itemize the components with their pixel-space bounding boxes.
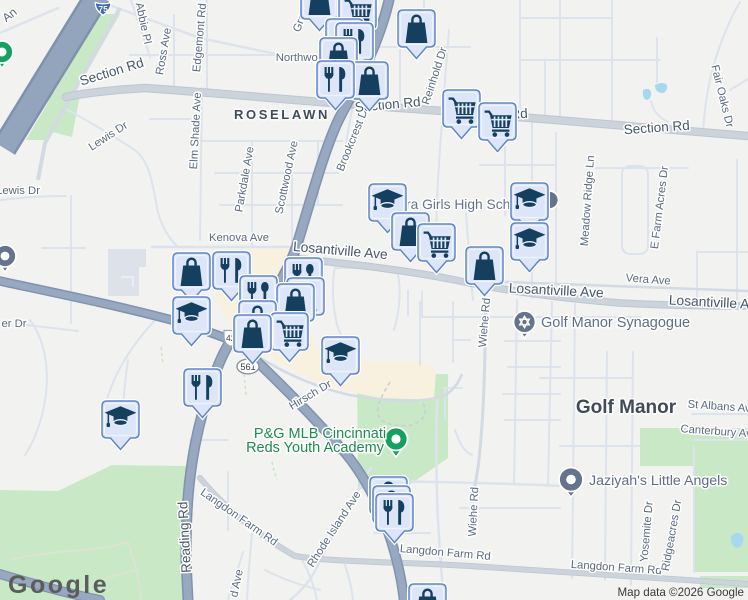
svg-text:ra Girls High Scho: ra Girls High Scho: [406, 197, 518, 212]
svg-text:Golf Manor: Golf Manor: [576, 397, 677, 418]
svg-text:Golf Manor Synagogue: Golf Manor Synagogue: [541, 315, 690, 331]
svg-text:75: 75: [98, 4, 108, 14]
svg-text:Lewis Dr: Lewis Dr: [0, 185, 40, 197]
svg-text:Kenova Ave: Kenova Ave: [209, 232, 269, 244]
svg-text:Map data ©2026 Google: Map data ©2026 Google: [617, 586, 744, 599]
svg-text:Reds Youth Academy: Reds Youth Academy: [246, 440, 385, 456]
svg-text:ROSELAWN: ROSELAWN: [234, 107, 330, 122]
svg-text:Google: Google: [8, 571, 109, 599]
svg-text:er Dr: er Dr: [1, 318, 26, 330]
svg-text:Jaziyah's Little Angels: Jaziyah's Little Angels: [589, 473, 727, 489]
